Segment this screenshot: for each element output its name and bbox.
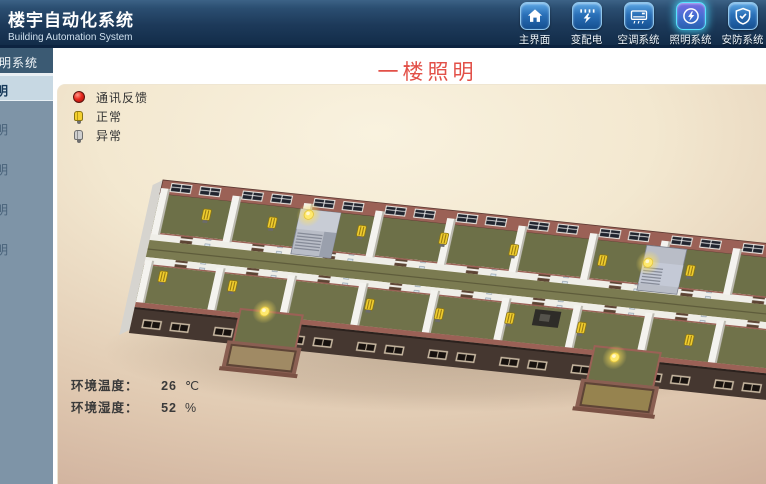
main-content: 一楼照明 [53, 48, 766, 484]
humidity-unit: % [185, 401, 197, 415]
legend-row-normal: 正常 [71, 107, 148, 125]
nav-lighting[interactable]: 照明系统 [669, 2, 712, 47]
sidebar-item-floor2[interactable]: 二楼照明 [0, 115, 53, 141]
system-nav: 主界面 变配电 空调系统 照明系统 安防系统 [513, 2, 764, 47]
floorplan-3d-view [58, 85, 766, 484]
humidity-value: 52 [143, 401, 177, 415]
temperature-row: 环境温度： 26 ℃ [71, 375, 200, 397]
power-icon [572, 2, 602, 30]
app-title: 楼宇自动化系统 [8, 6, 134, 31]
humidity-row: 环境湿度： 52 % [71, 397, 200, 419]
nav-main[interactable]: 主界面 [513, 2, 556, 47]
room-furniture [539, 314, 551, 322]
temperature-value: 26 [143, 379, 177, 393]
app-header: 楼宇自动化系统 Building Automation System 主界面 变… [0, 0, 766, 48]
sidebar-item-floor1[interactable]: 一楼照明 [0, 75, 53, 101]
legend-row-comm: 通讯反馈 [71, 88, 148, 106]
comm-indicator-icon [73, 91, 85, 103]
legend: 通讯反馈 正常 异常 [71, 88, 148, 145]
sidebar-item-floor3[interactable]: 三楼照明 [0, 155, 53, 181]
hvac-icon [624, 2, 654, 30]
sidebar-item-floor5[interactable]: 五楼照明 [0, 235, 53, 261]
nav-hvac[interactable]: 空调系统 [617, 2, 660, 47]
sidebar-item-floor4[interactable]: 四楼照明 [0, 195, 53, 221]
nav-power[interactable]: 变配电 [565, 2, 608, 47]
sidebar: 照明系统 一楼照明 二楼照明 三楼照明 四楼照明 五楼照明 [0, 48, 53, 484]
sidebar-header: 照明系统 [0, 48, 53, 75]
humidity-label: 环境湿度： [71, 397, 143, 416]
nav-security[interactable]: 安防系统 [721, 2, 764, 47]
environment-stats: 环境温度： 26 ℃ 环境湿度： 52 % [71, 375, 200, 419]
legend-row-abnormal: 异常 [71, 126, 148, 144]
temperature-label: 环境温度： [71, 375, 143, 394]
home-icon [520, 2, 550, 30]
bulb-normal-icon [74, 111, 83, 121]
bulb-abnormal-icon [74, 130, 83, 140]
shield-icon [728, 2, 758, 30]
floorplan-panel: 通讯反馈 正常 异常 环境温度： 26 ℃ 环境湿度： 52 % [57, 84, 766, 484]
lighting-icon [676, 2, 706, 30]
sidebar-list: 一楼照明 二楼照明 三楼照明 四楼照明 五楼照明 [0, 75, 53, 261]
page-title: 一楼照明 [53, 56, 766, 86]
temperature-unit: ℃ [185, 378, 200, 393]
app-subtitle: Building Automation System [8, 32, 134, 43]
app-brand: 楼宇自动化系统 Building Automation System [8, 6, 134, 43]
